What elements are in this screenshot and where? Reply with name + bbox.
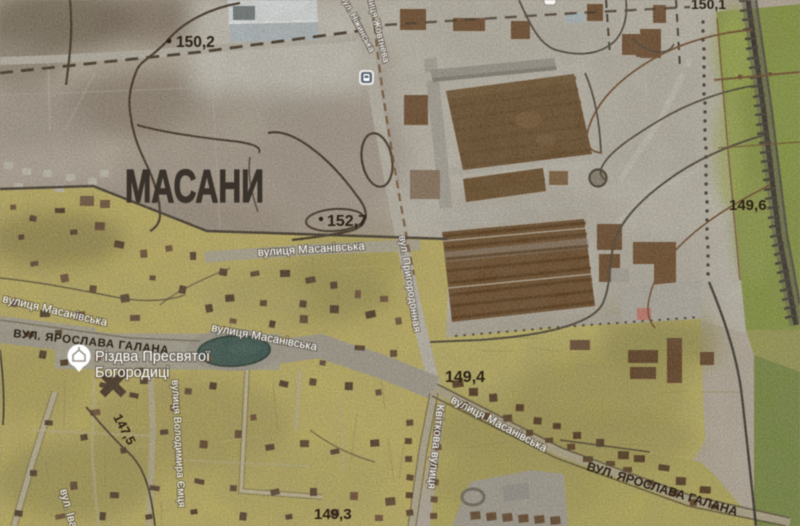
- svg-text:150,1: 150,1: [691, 0, 726, 12]
- svg-text:Різдва Пресвятої: Різдва Пресвятої: [95, 349, 210, 365]
- svg-text:149,6: 149,6: [729, 197, 767, 214]
- svg-text:149,4: 149,4: [445, 369, 485, 386]
- svg-text:150,2: 150,2: [176, 34, 215, 51]
- svg-text:МАСАНИ: МАСАНИ: [125, 160, 264, 212]
- svg-text:149,3: 149,3: [314, 506, 352, 523]
- svg-text:Богородиці: Богородиці: [95, 365, 170, 381]
- svg-text:152,7: 152,7: [327, 213, 367, 230]
